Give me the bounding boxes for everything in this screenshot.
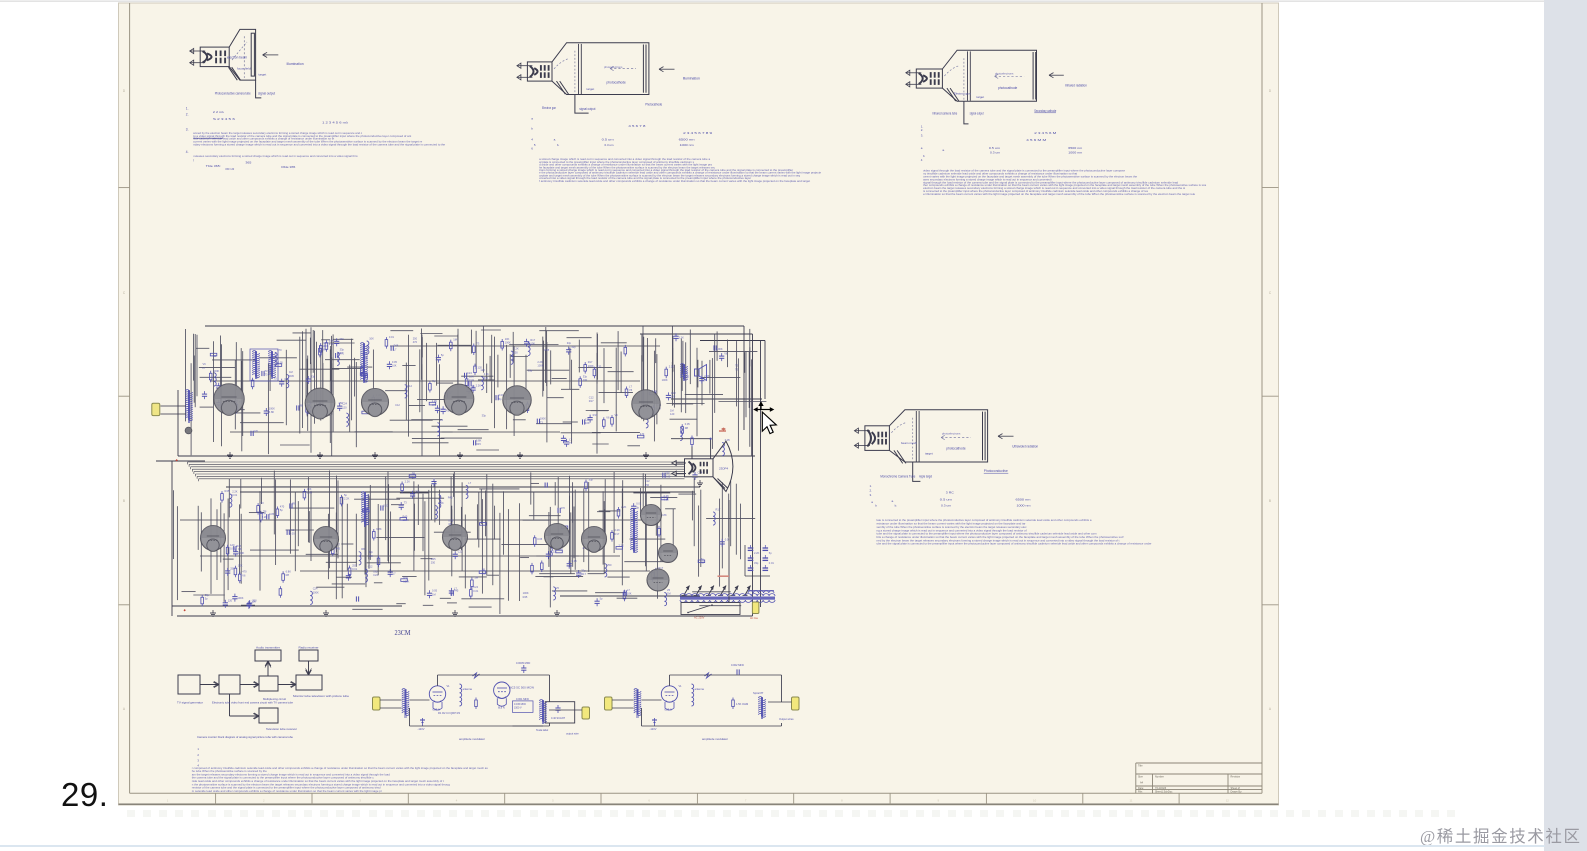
svg-text:0.01: 0.01 bbox=[769, 561, 775, 565]
svg-text:Electron gun: Electron gun bbox=[954, 92, 971, 96]
svg-text:1M: 1M bbox=[432, 592, 436, 596]
svg-text:33p: 33p bbox=[482, 414, 487, 418]
svg-text:Secondary cathode: Secondary cathode bbox=[1034, 109, 1056, 113]
svg-text:0.01: 0.01 bbox=[484, 372, 490, 376]
svg-text:Monochrome Camera Tube: Monochrome Camera Tube bbox=[880, 474, 915, 478]
svg-text:10K: 10K bbox=[238, 564, 243, 568]
svg-text:photoelectrons: photoelectrons bbox=[995, 72, 1014, 76]
svg-text:470: 470 bbox=[561, 506, 566, 510]
svg-text:0.05: 0.05 bbox=[290, 532, 296, 536]
svg-text:R17: R17 bbox=[615, 532, 620, 536]
svg-text:6L6 N: 6L6 N bbox=[498, 706, 505, 709]
svg-text:10K: 10K bbox=[585, 421, 590, 425]
svg-text:120: 120 bbox=[228, 598, 233, 602]
svg-text:0.002 MFD: 0.002 MFD bbox=[731, 663, 744, 667]
svg-text:10: 10 bbox=[1033, 799, 1037, 803]
svg-text:target: target bbox=[976, 95, 984, 99]
svg-text:250: 250 bbox=[230, 566, 235, 570]
svg-text:b.: b. bbox=[557, 143, 560, 147]
svg-text:R17: R17 bbox=[530, 338, 535, 342]
svg-text:Rble 365: Rble 365 bbox=[281, 165, 295, 169]
svg-text:photocathode: photocathode bbox=[946, 447, 966, 451]
svg-text:Monitor tube television with p: Monitor tube television with picture tub… bbox=[293, 694, 349, 698]
svg-text:2.2K: 2.2K bbox=[679, 335, 685, 339]
svg-text:Illumination: Illumination bbox=[287, 62, 304, 66]
svg-text:b.: b. bbox=[895, 503, 898, 507]
svg-text:photocathode: photocathode bbox=[998, 86, 1018, 90]
svg-text:Spiral 8T: Spiral 8T bbox=[753, 691, 764, 695]
svg-text:2.2K: 2.2K bbox=[754, 551, 760, 555]
svg-text:R45: R45 bbox=[544, 348, 549, 352]
svg-text:0.5 um: 0.5 um bbox=[602, 138, 615, 142]
svg-text:Drawn By:: Drawn By: bbox=[1231, 791, 1243, 794]
svg-text:100K: 100K bbox=[717, 347, 723, 351]
svg-text:R45: R45 bbox=[403, 514, 408, 518]
svg-text:0.05: 0.05 bbox=[448, 519, 454, 523]
svg-text:1M: 1M bbox=[284, 377, 288, 381]
svg-text:R17: R17 bbox=[593, 413, 598, 417]
svg-text:120: 120 bbox=[342, 405, 347, 409]
svg-text:2.2K: 2.2K bbox=[405, 480, 411, 484]
svg-text:0.05: 0.05 bbox=[432, 589, 438, 593]
svg-text:250: 250 bbox=[607, 563, 612, 567]
svg-text:33p: 33p bbox=[369, 550, 374, 554]
svg-text:R45: R45 bbox=[523, 595, 528, 599]
svg-text:0.3 um: 0.3 um bbox=[941, 504, 952, 508]
svg-text:6C5 N: 6C5 N bbox=[665, 709, 672, 712]
svg-text:11: 11 bbox=[1130, 799, 1133, 803]
svg-text:focus field: focus field bbox=[237, 67, 251, 71]
svg-text:100K: 100K bbox=[269, 407, 275, 411]
svg-text:120: 120 bbox=[230, 543, 235, 547]
svg-text:250: 250 bbox=[513, 350, 518, 354]
svg-text:120: 120 bbox=[478, 365, 483, 369]
svg-text:10K: 10K bbox=[369, 337, 374, 341]
svg-text:100K: 100K bbox=[523, 591, 529, 595]
svg-text:470: 470 bbox=[432, 403, 437, 407]
svg-text:33p: 33p bbox=[665, 471, 670, 475]
svg-text:V6: V6 bbox=[556, 586, 560, 590]
svg-text:C12: C12 bbox=[338, 351, 343, 355]
svg-text:ube and the signal plate is co: ube and the signal plate is connected to… bbox=[877, 543, 1152, 546]
svg-text:R8: R8 bbox=[701, 561, 705, 565]
svg-text:Revision: Revision bbox=[1231, 776, 1241, 779]
svg-text:target: target bbox=[587, 87, 595, 91]
svg-text:ndary electrons forming a stor: ndary electrons forming a stored charge … bbox=[193, 143, 446, 146]
svg-text:0.01: 0.01 bbox=[352, 567, 358, 571]
svg-text:R45: R45 bbox=[394, 344, 399, 348]
svg-text:C12: C12 bbox=[407, 384, 412, 388]
svg-text:100K: 100K bbox=[403, 518, 409, 522]
svg-text:1000 nm: 1000 nm bbox=[1017, 504, 1032, 508]
svg-text:Radio receiver: Radio receiver bbox=[299, 645, 319, 649]
svg-text:antenna: antenna bbox=[463, 687, 473, 691]
svg-text:Output wires: Output wires bbox=[779, 717, 794, 721]
svg-text:0.05: 0.05 bbox=[725, 537, 731, 541]
svg-text:33p: 33p bbox=[589, 478, 594, 482]
svg-text:Infrared radiation: Infrared radiation bbox=[1065, 84, 1087, 88]
svg-text:6.8K: 6.8K bbox=[664, 498, 670, 502]
svg-text:beam mesh: beam mesh bbox=[901, 441, 917, 445]
svg-text:V6: V6 bbox=[203, 362, 207, 366]
svg-text:250: 250 bbox=[352, 564, 357, 568]
svg-text:33p: 33p bbox=[311, 375, 316, 379]
svg-text:C12: C12 bbox=[458, 550, 463, 554]
svg-text:2.2K: 2.2K bbox=[344, 497, 350, 501]
svg-text:R8: R8 bbox=[213, 354, 217, 358]
svg-text:2.2K: 2.2K bbox=[513, 347, 519, 351]
svg-text:R8: R8 bbox=[292, 502, 296, 506]
svg-text:2 2 mλ: 2 2 mλ bbox=[213, 110, 225, 114]
svg-text:10K: 10K bbox=[392, 364, 397, 368]
svg-text:33p: 33p bbox=[340, 348, 345, 352]
svg-text:R45: R45 bbox=[403, 576, 408, 580]
svg-text:R45: R45 bbox=[225, 489, 230, 493]
svg-text:Sheet1.SchDoc: Sheet1.SchDoc bbox=[1155, 791, 1173, 794]
svg-text:1000 nm: 1000 nm bbox=[680, 143, 695, 147]
svg-text:23DP4: 23DP4 bbox=[719, 466, 729, 470]
svg-text:V6: V6 bbox=[606, 415, 610, 419]
svg-text:Camera monitor block diagram o: Camera monitor block diagram of analog s… bbox=[197, 735, 293, 739]
svg-text:6C5 5C 500 MCW: 6C5 5C 500 MCW bbox=[510, 687, 535, 690]
svg-text:0.01: 0.01 bbox=[383, 504, 389, 508]
svg-text:C12: C12 bbox=[645, 479, 650, 483]
svg-text:V6: V6 bbox=[472, 385, 476, 389]
svg-text:100K: 100K bbox=[540, 417, 546, 421]
svg-text:2.2K: 2.2K bbox=[432, 399, 438, 403]
svg-text:33p: 33p bbox=[583, 374, 588, 378]
svg-text:2.2K: 2.2K bbox=[537, 360, 543, 364]
svg-text:R8: R8 bbox=[299, 404, 303, 408]
svg-text:electron beam: electron beam bbox=[227, 56, 248, 60]
svg-text:250: 250 bbox=[339, 401, 344, 405]
svg-text:0.01: 0.01 bbox=[232, 493, 238, 497]
svg-text:10K: 10K bbox=[329, 338, 334, 342]
svg-text:250: 250 bbox=[415, 489, 420, 493]
svg-text:m selenide lead oxide and othe: m selenide lead oxide and other compound… bbox=[192, 790, 382, 793]
svg-text:250: 250 bbox=[413, 336, 418, 340]
svg-text:6.8K: 6.8K bbox=[269, 512, 275, 516]
svg-text:photoelectrons: photoelectrons bbox=[942, 432, 961, 436]
svg-text:0.05: 0.05 bbox=[392, 360, 398, 364]
svg-text:R1 R2 C3 QRP R3: R1 R2 C3 QRP R3 bbox=[438, 711, 461, 715]
svg-text:C12: C12 bbox=[589, 395, 594, 399]
svg-text:6.8K: 6.8K bbox=[286, 569, 292, 573]
svg-text:R8: R8 bbox=[482, 568, 486, 572]
svg-text:Photoconductive: Photoconductive bbox=[984, 469, 1008, 473]
svg-text:120: 120 bbox=[670, 412, 675, 416]
svg-text:3.: 3. bbox=[870, 493, 873, 497]
svg-text:C24: C24 bbox=[373, 573, 378, 577]
svg-text:C24: C24 bbox=[342, 402, 347, 406]
svg-text:0.3 um: 0.3 um bbox=[605, 143, 614, 147]
svg-text:target: target bbox=[925, 452, 933, 456]
svg-text:0.5 um: 0.5 um bbox=[989, 146, 1001, 150]
svg-text:Audio transmitter: Audio transmitter bbox=[256, 645, 280, 649]
svg-text:6.8K: 6.8K bbox=[476, 438, 482, 442]
svg-text:C12: C12 bbox=[671, 391, 676, 395]
svg-text:R45: R45 bbox=[431, 557, 436, 561]
svg-text:R17: R17 bbox=[588, 360, 593, 364]
svg-text:470: 470 bbox=[484, 376, 489, 380]
svg-text:10K: 10K bbox=[469, 374, 474, 378]
svg-text:R8: R8 bbox=[412, 472, 416, 476]
svg-text:100K: 100K bbox=[662, 378, 668, 382]
svg-text:1.: 1. bbox=[870, 484, 873, 488]
svg-text:100K: 100K bbox=[313, 590, 319, 594]
svg-text:0.01: 0.01 bbox=[636, 502, 642, 506]
svg-text:S 2 3 4 5 6: S 2 3 4 5 6 bbox=[213, 117, 236, 121]
svg-text:2 3 4 5 6 7 8 9: 2 3 4 5 6 7 8 9 bbox=[683, 131, 713, 135]
svg-text:-120V: -120V bbox=[650, 727, 657, 731]
svg-text:Date:: Date: bbox=[1138, 787, 1144, 790]
svg-text:C12: C12 bbox=[395, 403, 400, 407]
svg-text:R17: R17 bbox=[482, 571, 487, 575]
svg-text:470: 470 bbox=[339, 337, 344, 341]
svg-text:signal output: signal output bbox=[579, 107, 595, 111]
svg-text:250: 250 bbox=[431, 561, 436, 565]
svg-text:Size: Size bbox=[1138, 776, 1143, 779]
svg-text:signal output: signal output bbox=[258, 91, 275, 95]
svg-text:470: 470 bbox=[413, 340, 418, 344]
svg-text:Illumination: Illumination bbox=[683, 77, 700, 81]
svg-text:33p: 33p bbox=[581, 569, 586, 573]
svg-text:target: target bbox=[259, 73, 267, 77]
svg-text:output wire: output wire bbox=[566, 732, 579, 736]
svg-text:1 2 3 4 5 6 mλ: 1 2 3 4 5 6 mλ bbox=[322, 121, 349, 125]
svg-text:365: 365 bbox=[245, 161, 251, 165]
svg-text:1000 nm: 1000 nm bbox=[1068, 151, 1083, 155]
svg-text:3.: 3. bbox=[921, 134, 924, 138]
svg-text:amplitude modulator: amplitude modulator bbox=[459, 737, 485, 741]
svg-text:470: 470 bbox=[280, 505, 285, 509]
svg-text:2.2K: 2.2K bbox=[232, 490, 238, 494]
svg-text:10K: 10K bbox=[505, 337, 510, 341]
svg-text:C12: C12 bbox=[368, 565, 373, 569]
svg-text:AC 220V: AC 220V bbox=[694, 616, 705, 620]
svg-text:23CM: 23CM bbox=[395, 629, 412, 637]
svg-text:R17: R17 bbox=[716, 507, 721, 511]
svg-text:6.8K: 6.8K bbox=[376, 527, 382, 531]
svg-text:R45: R45 bbox=[289, 374, 294, 378]
svg-text:2.2K: 2.2K bbox=[704, 374, 710, 378]
svg-text:0.05: 0.05 bbox=[685, 422, 691, 426]
svg-text:1M: 1M bbox=[667, 592, 671, 596]
svg-text:100K: 100K bbox=[505, 341, 511, 345]
svg-text:er illumination so that the be: er illumination so that the beam current… bbox=[923, 193, 1196, 196]
svg-text:2.: 2. bbox=[921, 128, 924, 132]
svg-text:Television tube receiver: Television tube receiver bbox=[266, 727, 297, 731]
svg-text:V6: V6 bbox=[724, 352, 728, 356]
svg-text:120: 120 bbox=[671, 395, 676, 399]
svg-text:470: 470 bbox=[242, 570, 247, 574]
svg-text:antenna: antenna bbox=[695, 687, 705, 691]
svg-text:2.: 2. bbox=[870, 488, 873, 492]
svg-text:470: 470 bbox=[597, 365, 602, 369]
svg-text:0.05: 0.05 bbox=[664, 494, 670, 498]
svg-text:2 3 4 5 6 M: 2 3 4 5 6 M bbox=[1034, 131, 1057, 135]
svg-text:100K: 100K bbox=[588, 364, 594, 368]
svg-text:Multiplexing circuit: Multiplexing circuit bbox=[263, 697, 286, 701]
svg-text:2.: 2. bbox=[186, 113, 189, 117]
svg-text:1500 V: 1500 V bbox=[514, 706, 522, 709]
svg-text:V6: V6 bbox=[615, 413, 619, 417]
svg-text:B: B bbox=[123, 499, 125, 503]
svg-text:1M: 1M bbox=[670, 408, 674, 412]
svg-text:R8: R8 bbox=[685, 426, 689, 430]
svg-text:0.40 SCANT: 0.40 SCANT bbox=[551, 717, 566, 720]
svg-text:1M: 1M bbox=[453, 338, 457, 342]
svg-text:C24: C24 bbox=[469, 378, 474, 382]
svg-text:10K: 10K bbox=[627, 592, 632, 596]
svg-text:6500 nm: 6500 nm bbox=[1068, 146, 1083, 150]
svg-text:Infrared camera tube: Infrared camera tube bbox=[932, 112, 957, 116]
svg-text:100K: 100K bbox=[213, 369, 219, 373]
svg-text:V6: V6 bbox=[629, 388, 633, 392]
svg-text:100K: 100K bbox=[537, 364, 543, 368]
svg-text:R17: R17 bbox=[589, 399, 594, 403]
svg-text:2.2K: 2.2K bbox=[669, 365, 675, 369]
svg-text:AC line: AC line bbox=[750, 617, 759, 620]
svg-text:150 / 20: 150 / 20 bbox=[225, 167, 234, 171]
svg-text:C12: C12 bbox=[551, 550, 556, 554]
svg-text:0.01: 0.01 bbox=[389, 335, 395, 339]
svg-text:a.: a. bbox=[554, 138, 557, 142]
svg-text:7/14/2023: 7/14/2023 bbox=[1155, 787, 1167, 790]
svg-text:0.05: 0.05 bbox=[537, 537, 543, 541]
svg-text:B: B bbox=[1269, 499, 1271, 503]
svg-text:Tesla label: Tesla label bbox=[536, 728, 549, 732]
svg-text:C24: C24 bbox=[467, 371, 472, 375]
svg-text:photocathode: photocathode bbox=[607, 81, 627, 85]
svg-text:Tble 365:: Tble 365: bbox=[206, 164, 221, 168]
svg-text:Electron gun: Electron gun bbox=[542, 106, 556, 110]
svg-text:amplitude modulator: amplitude modulator bbox=[702, 737, 728, 741]
svg-text:Sheet of: Sheet of bbox=[1231, 787, 1241, 790]
svg-text:0.5 um: 0.5 um bbox=[940, 498, 953, 502]
svg-text:1M: 1M bbox=[474, 576, 478, 580]
svg-text:100K: 100K bbox=[237, 596, 243, 600]
svg-text:10K: 10K bbox=[583, 378, 588, 382]
svg-text:C24: C24 bbox=[313, 587, 318, 591]
svg-text:100K: 100K bbox=[238, 551, 244, 555]
svg-text:1.5K OHM: 1.5K OHM bbox=[736, 702, 748, 706]
svg-text:R8: R8 bbox=[238, 547, 242, 551]
svg-text:R17: R17 bbox=[581, 572, 586, 576]
svg-text:2.2K: 2.2K bbox=[476, 383, 482, 387]
svg-text:a.: a. bbox=[892, 499, 895, 503]
svg-text:6500 nm: 6500 nm bbox=[1016, 498, 1032, 502]
svg-text:R8: R8 bbox=[286, 573, 290, 577]
svg-text:33p: 33p bbox=[754, 561, 759, 565]
svg-text:V6: V6 bbox=[440, 418, 444, 422]
svg-text:33p: 33p bbox=[373, 570, 378, 574]
svg-text:photoelectrons: photoelectrons bbox=[604, 65, 623, 69]
svg-text:-120V: -120V bbox=[418, 727, 425, 731]
svg-text:V6: V6 bbox=[242, 573, 246, 577]
svg-text:0.0005 MFD: 0.0005 MFD bbox=[516, 661, 530, 665]
svg-text:R45: R45 bbox=[448, 495, 453, 499]
svg-text:R45: R45 bbox=[454, 589, 459, 593]
svg-text:Photocathode: Photocathode bbox=[645, 103, 662, 107]
svg-text:33p: 33p bbox=[567, 341, 572, 345]
svg-text:signal output: signal output bbox=[970, 112, 984, 116]
svg-text:TV signal generator: TV signal generator bbox=[177, 701, 203, 705]
svg-text:10K: 10K bbox=[307, 487, 312, 491]
svg-text:a.: a. bbox=[942, 148, 945, 152]
svg-text:0.001 MFD: 0.001 MFD bbox=[516, 697, 529, 701]
svg-text:0.01: 0.01 bbox=[473, 589, 479, 593]
svg-text:4 5 6 7 8: 4 5 6 7 8 bbox=[628, 124, 646, 128]
svg-text:Apple target: Apple target bbox=[919, 474, 932, 478]
svg-text:100K: 100K bbox=[438, 501, 444, 505]
svg-text:120: 120 bbox=[585, 418, 590, 422]
svg-text:0.05: 0.05 bbox=[230, 547, 236, 551]
svg-text:12: 12 bbox=[1226, 799, 1230, 803]
svg-text:C24: C24 bbox=[473, 585, 478, 589]
svg-text:10K: 10K bbox=[251, 599, 256, 603]
svg-text:6500 nm: 6500 nm bbox=[679, 138, 696, 142]
svg-text:10K: 10K bbox=[369, 554, 374, 558]
svg-text:V6: V6 bbox=[667, 588, 671, 592]
svg-text:250: 250 bbox=[645, 483, 650, 487]
svg-text:6.8K: 6.8K bbox=[269, 410, 275, 414]
svg-text:R8: R8 bbox=[361, 547, 365, 551]
svg-text:2.2K: 2.2K bbox=[619, 543, 625, 547]
svg-text:Photoconductive camera tube: Photoconductive camera tube bbox=[215, 91, 251, 95]
svg-text:Ultraviolet radiation: Ultraviolet radiation bbox=[1012, 445, 1038, 449]
svg-text:3 RC: 3 RC bbox=[946, 491, 955, 495]
svg-text:2.2K: 2.2K bbox=[621, 505, 627, 509]
svg-text:100K: 100K bbox=[403, 579, 409, 583]
svg-text:4.: 4. bbox=[186, 150, 189, 154]
svg-text:File:: File: bbox=[1138, 791, 1143, 794]
svg-text:f antimony trisulfide cadmium: f antimony trisulfide cadmium selenide l… bbox=[539, 180, 810, 183]
svg-text:C12: C12 bbox=[290, 528, 295, 532]
svg-text:470: 470 bbox=[640, 432, 645, 436]
svg-text:10K: 10K bbox=[530, 342, 535, 346]
svg-text:1M: 1M bbox=[289, 370, 293, 374]
svg-text:1.: 1. bbox=[186, 107, 189, 111]
svg-text:6.8K: 6.8K bbox=[661, 513, 667, 517]
svg-text:4 5 6 M M: 4 5 6 M M bbox=[1026, 138, 1047, 142]
svg-text:33p: 33p bbox=[528, 368, 533, 372]
svg-text:releases secondary electrons f: releases secondary electrons forming a s… bbox=[194, 155, 359, 158]
svg-text:0.05: 0.05 bbox=[278, 361, 284, 365]
svg-text:2.2K: 2.2K bbox=[615, 528, 621, 532]
svg-text:470: 470 bbox=[329, 342, 334, 346]
svg-text:120: 120 bbox=[254, 429, 259, 433]
svg-text:33p: 33p bbox=[571, 345, 576, 349]
svg-text:0.05: 0.05 bbox=[572, 559, 578, 563]
svg-text:33p: 33p bbox=[205, 593, 210, 597]
svg-text:R45: R45 bbox=[476, 442, 481, 446]
svg-text:3.: 3. bbox=[186, 128, 189, 132]
svg-text:0.05: 0.05 bbox=[307, 491, 313, 495]
svg-text:Number: Number bbox=[1155, 776, 1164, 779]
svg-text:0.3 um: 0.3 um bbox=[990, 151, 1001, 155]
svg-text:Title: Title bbox=[1138, 765, 1143, 768]
svg-text:0.05: 0.05 bbox=[665, 474, 671, 478]
